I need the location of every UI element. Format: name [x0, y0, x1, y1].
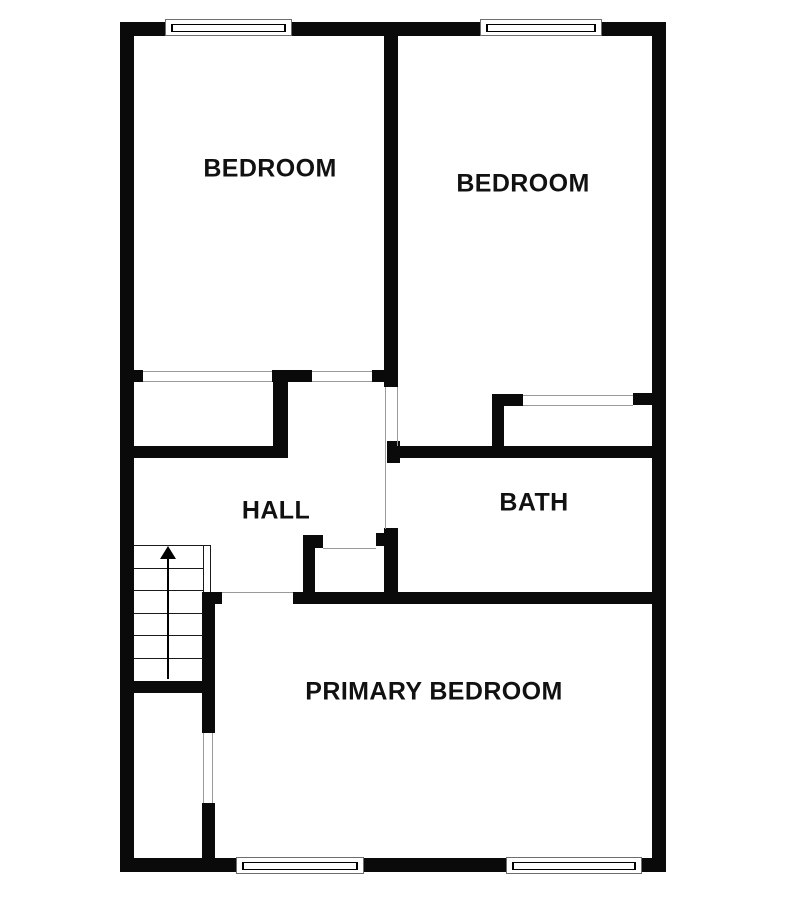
bedroom1-closet-opening-bottom — [143, 381, 272, 382]
bedroom1-door-opening-top — [312, 371, 372, 372]
bath-north-wall — [387, 446, 652, 458]
room-label-bath: BATH — [499, 489, 568, 518]
room-label-bedroom-left: BEDROOM — [203, 155, 336, 184]
room-label-primary-bedroom: PRIMARY BEDROOM — [305, 678, 562, 707]
hall-closet-east-jamb-wall — [376, 533, 384, 546]
floor-plan: BEDROOM BEDROOM HALL BATH PRIMARY BEDROO… — [0, 0, 800, 898]
hall-south-wall — [293, 592, 652, 604]
window-top-left — [165, 19, 292, 36]
hall-closet-west-jamb-wall — [315, 535, 323, 548]
exterior-right-wall — [652, 22, 666, 872]
bedroom2-closet-opening-bottom — [523, 405, 633, 406]
stair-rail-line — [210, 545, 211, 592]
room-label-bedroom-right: BEDROOM — [456, 170, 589, 199]
window-top-right — [480, 19, 602, 36]
closet-door-opening-east — [212, 733, 213, 803]
closet-door-opening-west — [203, 733, 204, 803]
bedroom1-door-opening-bottom — [312, 381, 372, 382]
closet-east-lower-wall — [202, 803, 215, 858]
window-bottom-left — [236, 857, 364, 874]
stair-direction-arrow-shaft — [167, 557, 169, 679]
window-bottom-left-glass — [242, 862, 358, 870]
hall-closet-west-wall — [303, 535, 315, 592]
stair-rail-cap — [203, 545, 211, 546]
hall-closet-opening — [323, 548, 376, 549]
primary-bedroom-door-opening — [222, 592, 293, 593]
bedroom1-south-mid-wall — [272, 370, 312, 382]
stairwell-south-wall — [134, 681, 215, 693]
hall-closet-east-wall — [384, 528, 398, 592]
bedroom2-closet-opening-top — [523, 395, 633, 396]
window-bottom-right-glass — [512, 862, 636, 870]
window-top-left-glass — [171, 24, 286, 32]
hall-north-wall — [120, 446, 288, 458]
vestibule-opening-west — [385, 387, 386, 529]
closet-east-upper-wall — [202, 592, 215, 733]
bedroom1-south-stub-left-wall — [134, 370, 143, 382]
stair-rail-line — [203, 545, 204, 592]
vestibule-opening-east — [397, 387, 398, 446]
window-top-right-glass — [486, 24, 596, 32]
bedroom2-south-stub-right-wall — [633, 393, 652, 405]
bedroom1-south-stub-right-wall — [372, 370, 384, 382]
bedroom-divider-wall — [384, 36, 398, 387]
room-label-hall: HALL — [242, 497, 310, 526]
bedroom1-closet-opening-top — [143, 371, 272, 372]
window-bottom-right — [506, 857, 642, 874]
